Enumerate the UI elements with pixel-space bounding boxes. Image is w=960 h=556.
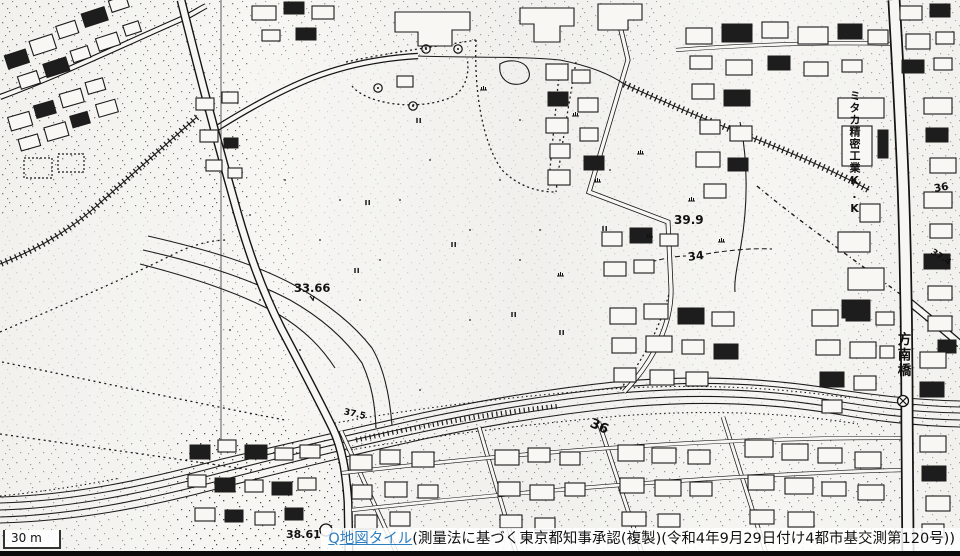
spot-height-38-61: 38.61 [286, 528, 321, 541]
attribution-bar: Q地図タイル(測量法に基づく東京都知事承認(複製)(令和4年9月29日付け4都市… [321, 528, 960, 551]
bridge-label: 方南橋 [895, 332, 909, 379]
bottom-black-strip [0, 551, 960, 556]
edge-label-36: 36 [933, 181, 949, 195]
map-viewport[interactable]: 33.66 39.9 34 36 36 37.4 38.61 37.5 ミタカ精… [0, 0, 960, 556]
map-canvas[interactable]: 33.66 39.9 34 36 36 37.4 38.61 37.5 [0, 0, 960, 556]
attribution-link[interactable]: Q地図タイル [328, 531, 412, 547]
scale-bar-label: 30 m [11, 531, 42, 545]
police-box-icon [898, 396, 909, 407]
scale-bar: 30 m [3, 530, 61, 549]
factory-label: ミタカ精密工業K.K [849, 90, 860, 216]
contour-label-34: 34 [687, 248, 705, 264]
spot-height-39-9: 39.9 [674, 213, 704, 227]
spot-height-33-66: 33.66 [294, 281, 330, 295]
attribution-text: (測量法に基づく東京都知事承認(複製)(令和4年9月29日付け4都市基交測第12… [412, 531, 955, 547]
